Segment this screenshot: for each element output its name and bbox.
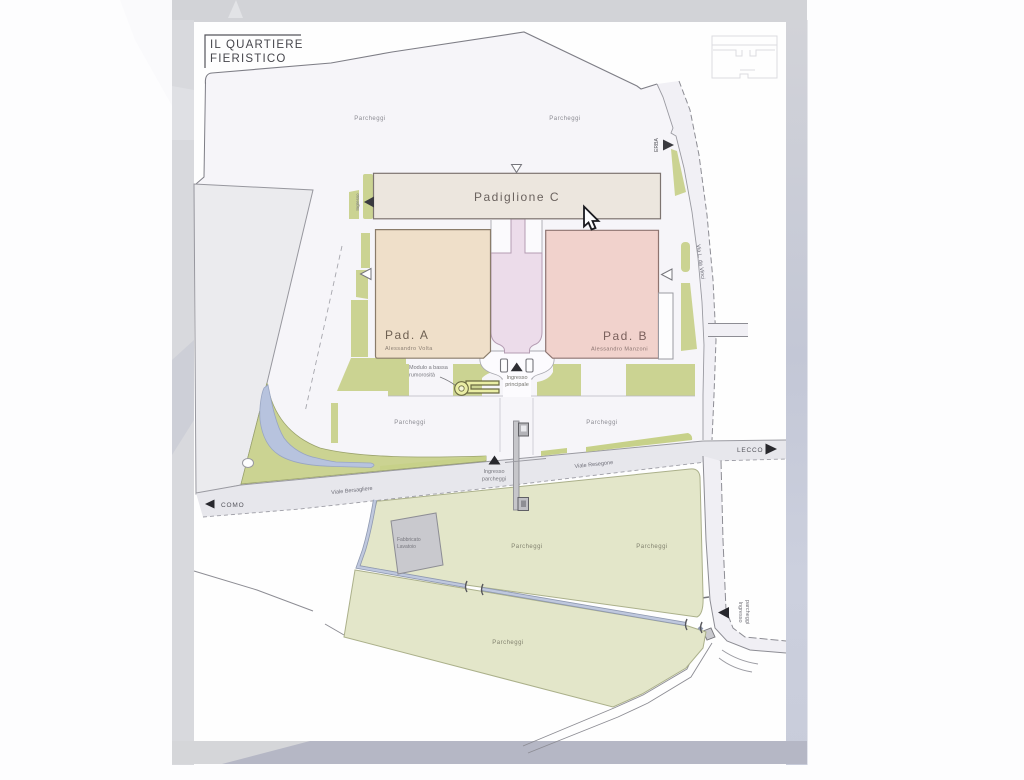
svg-text:COMO: COMO bbox=[221, 502, 244, 509]
svg-text:Alessandro Manzoni: Alessandro Manzoni bbox=[591, 347, 648, 353]
svg-text:rumorosità: rumorosità bbox=[409, 373, 436, 379]
svg-text:principale: principale bbox=[505, 382, 529, 388]
svg-text:Ingresso: Ingresso bbox=[483, 469, 504, 475]
svg-text:Modulo a bassa: Modulo a bassa bbox=[409, 365, 449, 371]
svg-text:Pad. B: Pad. B bbox=[603, 329, 648, 343]
svg-text:FIERISTICO: FIERISTICO bbox=[210, 53, 287, 65]
svg-text:Parcheggi: Parcheggi bbox=[586, 420, 618, 426]
svg-text:Parcheggi: Parcheggi bbox=[511, 544, 543, 550]
svg-text:parcheggi: parcheggi bbox=[744, 600, 750, 624]
svg-text:Alessandro Volta: Alessandro Volta bbox=[385, 346, 433, 352]
svg-text:IL QUARTIERE: IL QUARTIERE bbox=[210, 39, 304, 51]
svg-text:Lavatoio: Lavatoio bbox=[397, 544, 416, 550]
svg-text:Parcheggi: Parcheggi bbox=[394, 420, 426, 426]
svg-text:Parcheggi: Parcheggi bbox=[492, 640, 524, 646]
svg-text:Parcheggi: Parcheggi bbox=[549, 116, 581, 122]
svg-text:LECCO: LECCO bbox=[737, 447, 763, 454]
svg-text:Parcheggi: Parcheggi bbox=[636, 544, 668, 550]
svg-text:Parcheggi: Parcheggi bbox=[354, 116, 386, 122]
svg-text:ERBA: ERBA bbox=[654, 138, 660, 152]
svg-text:Fabbricato: Fabbricato bbox=[397, 537, 421, 543]
svg-text:parcheggi: parcheggi bbox=[482, 477, 506, 483]
svg-text:Padiglione C: Padiglione C bbox=[474, 190, 560, 204]
svg-text:Pad. A: Pad. A bbox=[385, 328, 429, 342]
svg-text:Ingresso: Ingresso bbox=[737, 601, 743, 622]
svg-text:Ingresso: Ingresso bbox=[506, 375, 527, 381]
svg-text:Ingresso: Ingresso bbox=[355, 193, 360, 211]
